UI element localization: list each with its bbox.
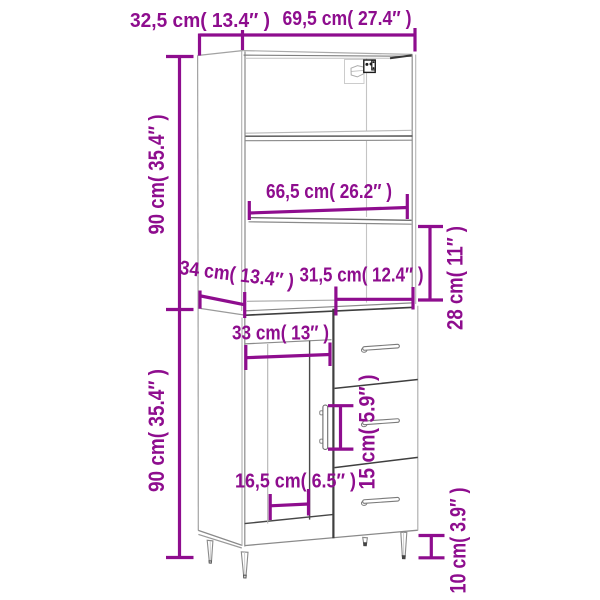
svg-text:66,5 cm( 26.2″ ): 66,5 cm( 26.2″ ) — [266, 181, 392, 203]
svg-text:33 cm( 13″ ): 33 cm( 13″ ) — [232, 323, 329, 345]
svg-text:90 cm( 35.4″ ): 90 cm( 35.4″ ) — [144, 115, 169, 235]
svg-text:31,5 cm( 12.4″ ): 31,5 cm( 12.4″ ) — [300, 265, 424, 287]
svg-text:90 cm( 35.4″ ): 90 cm( 35.4″ ) — [144, 369, 169, 492]
svg-text:28 cm( 11″ ): 28 cm( 11″ ) — [442, 226, 467, 330]
svg-text:69,5 cm( 27.4″ ): 69,5 cm( 27.4″ ) — [283, 8, 412, 30]
svg-text:10 cm( 3.9″ ): 10 cm( 3.9″ ) — [446, 488, 471, 594]
svg-text:15 cm( 5.9″ ): 15 cm( 5.9″ ) — [355, 375, 380, 490]
svg-text:32,5 cm( 13.4″ ): 32,5 cm( 13.4″ ) — [130, 10, 270, 32]
svg-text:16,5 cm( 6.5″ ): 16,5 cm( 6.5″ ) — [235, 470, 356, 492]
